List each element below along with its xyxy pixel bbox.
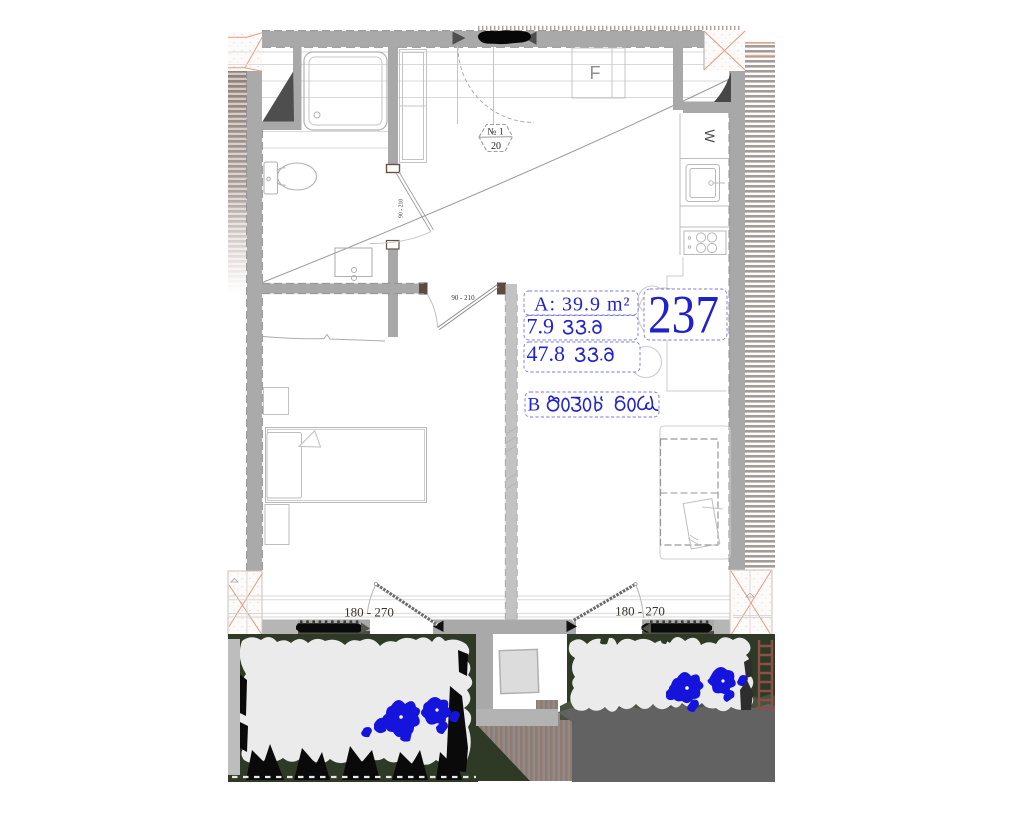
svg-text:90 - 210: 90 - 210	[451, 294, 475, 302]
svg-text:90 - 210: 90 - 210	[399, 199, 405, 218]
svg-text:180 - 270: 180 - 270	[615, 604, 665, 619]
svg-text:W: W	[702, 129, 718, 143]
svg-text:№ 1: № 1	[487, 128, 503, 138]
svg-text:A: 39.9 m²: A: 39.9 m²	[534, 294, 631, 316]
svg-text:237: 237	[648, 285, 719, 345]
svg-text:47.8: 47.8	[527, 341, 566, 366]
svg-text:7.9: 7.9	[527, 314, 555, 339]
svg-text:180 - 270: 180 - 270	[344, 605, 394, 620]
svg-text:B: B	[528, 395, 541, 416]
svg-text:20: 20	[491, 141, 501, 152]
svg-text:F: F	[590, 63, 601, 83]
